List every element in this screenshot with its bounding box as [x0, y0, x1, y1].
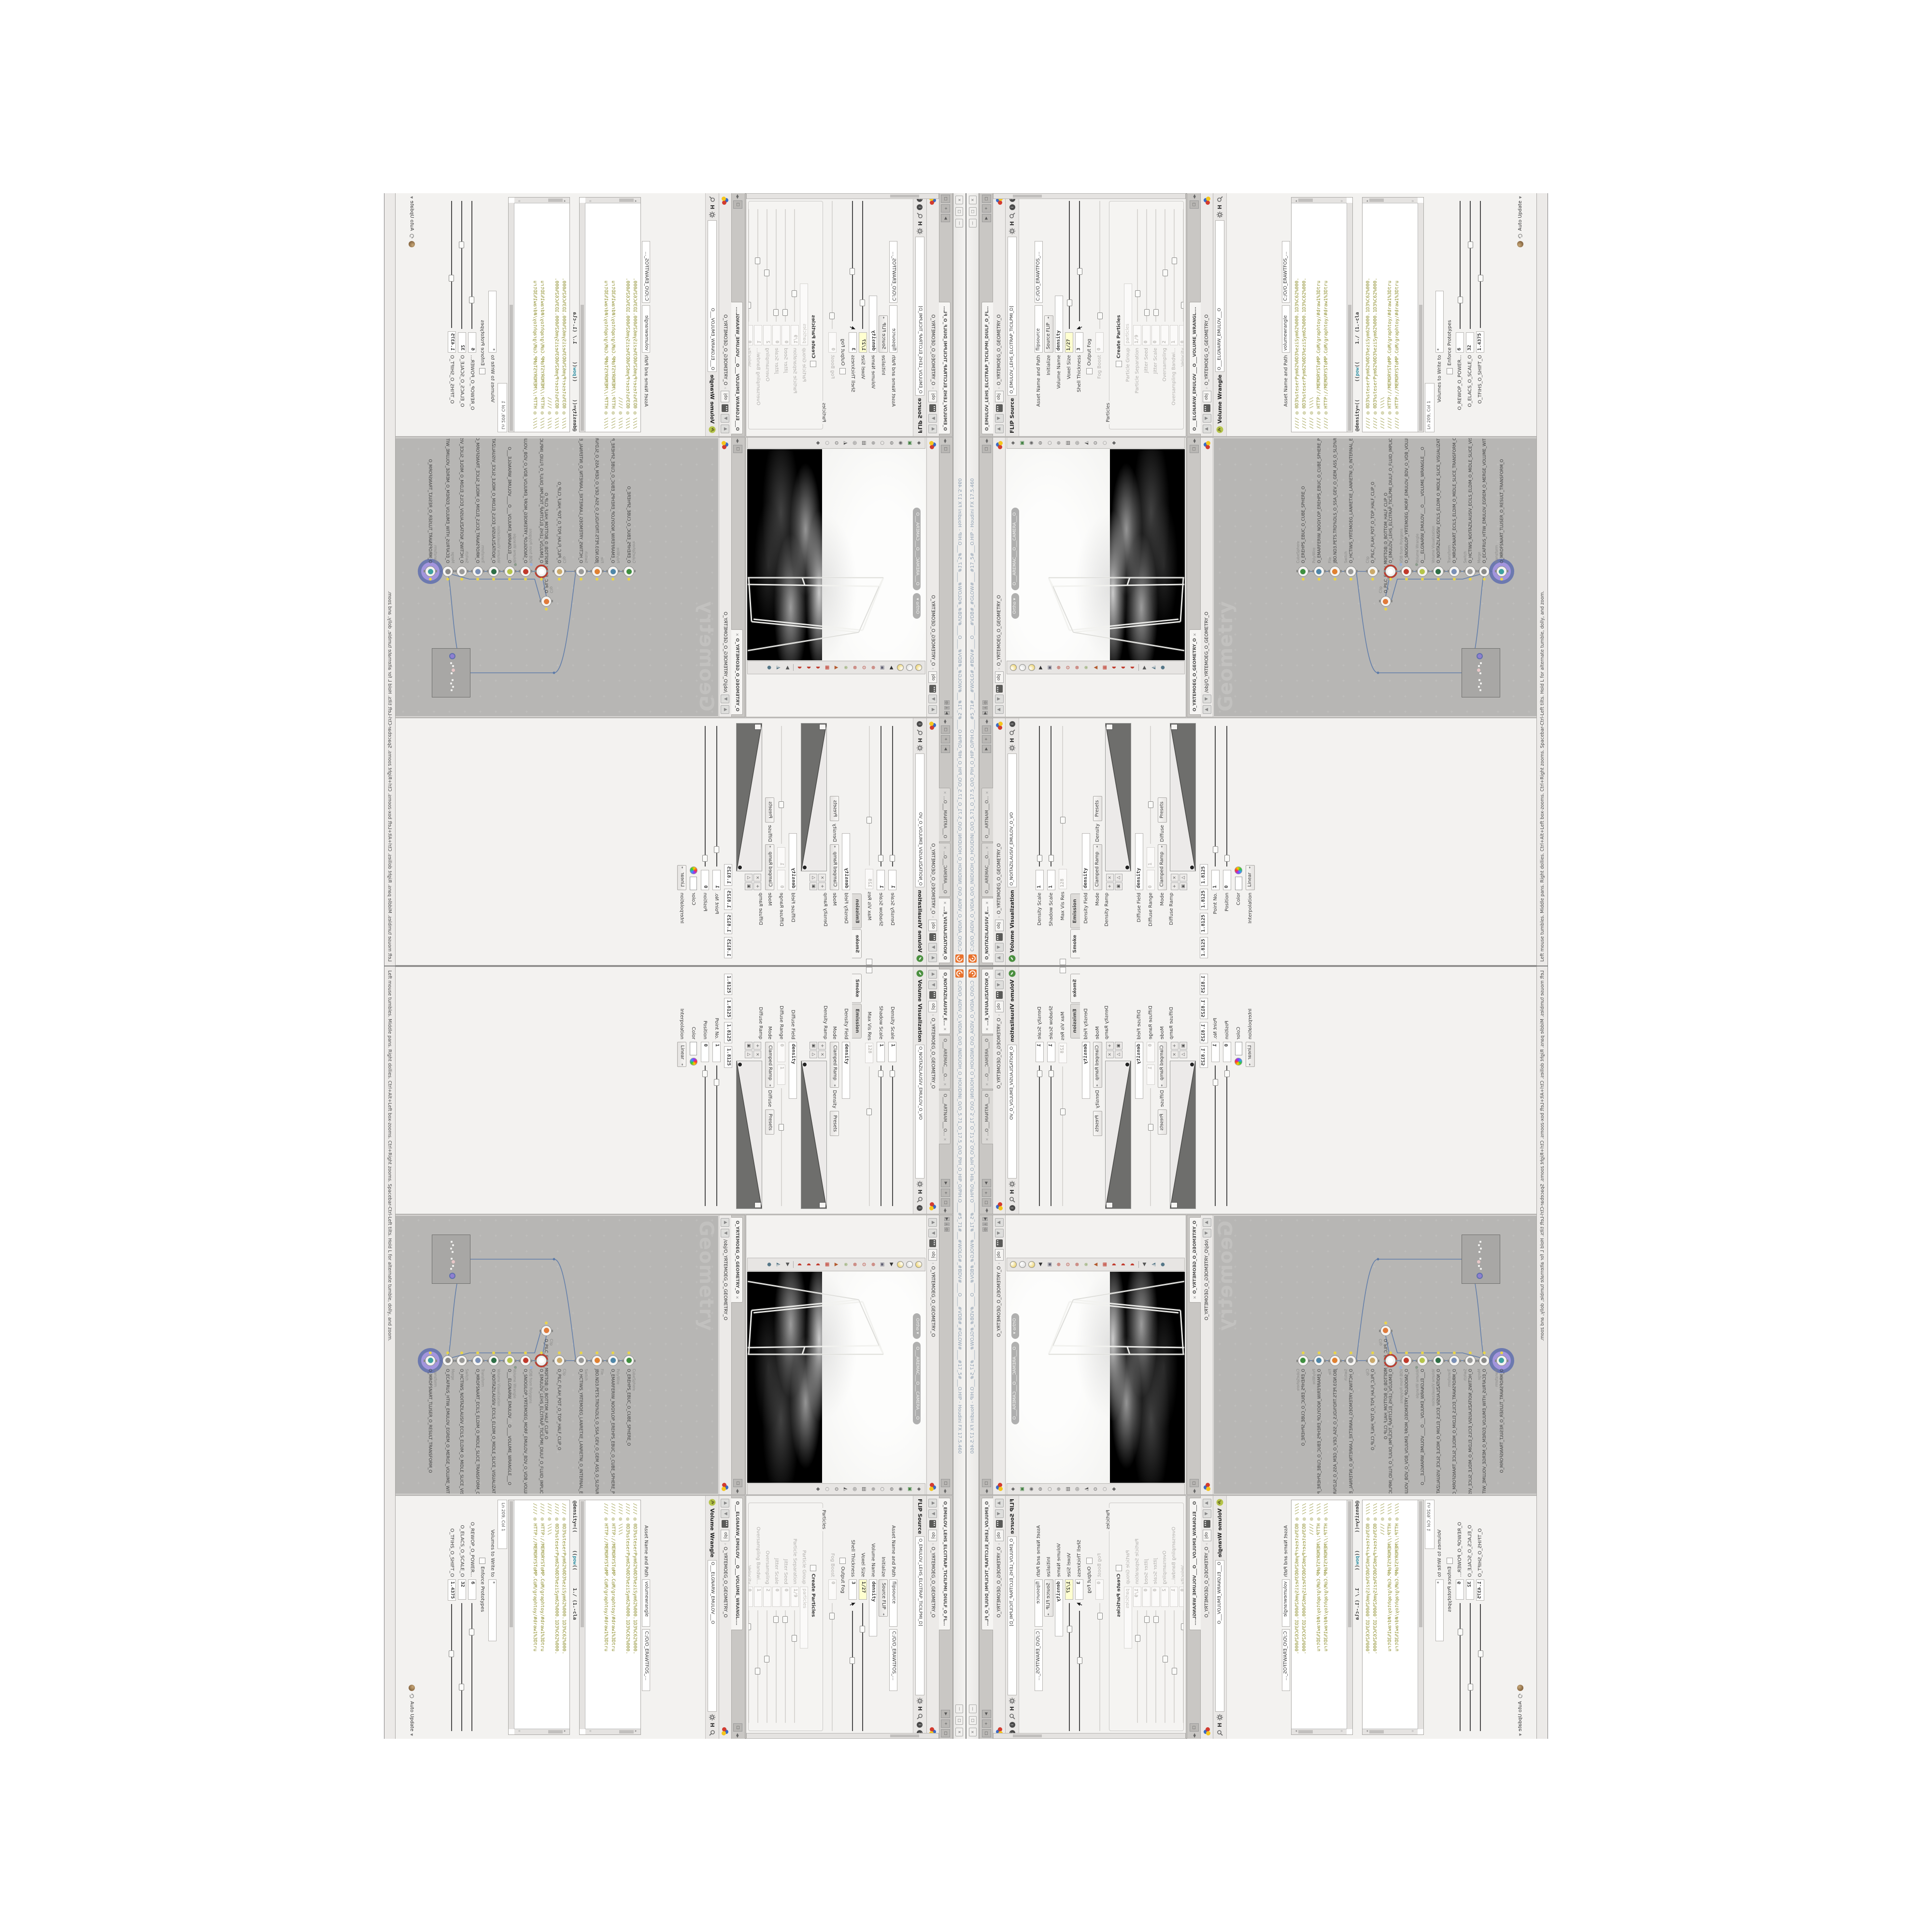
expand-icon[interactable]: ▶ [1141, 1261, 1148, 1268]
node-name-label[interactable]: O_EMULOV_LEHS_ELCITRAP_TICILPMI_DIULF_O_… [539, 1369, 543, 1494]
value-field[interactable]: 1.4375 [448, 331, 456, 353]
code-vertical-scrollbar[interactable] [514, 1729, 569, 1734]
ramp-button-icon[interactable]: ▣ [1115, 882, 1122, 890]
pane-play-icon[interactable]: ▶ [982, 1710, 991, 1718]
nav-up-icon[interactable]: ▲ [995, 705, 1004, 714]
node-name-label[interactable]: O_HCTIWS_NOITAZILAUSIV_ECILS_ELDIM_O_MID… [459, 438, 464, 563]
pose-tool-icon[interactable]: ※ [842, 1261, 849, 1268]
nav-down-icon[interactable]: ▼ [995, 980, 1004, 989]
value-field[interactable]: density [1082, 833, 1090, 890]
view-tool-icon[interactable]: ◈ [915, 439, 922, 447]
ramp-edit-buttons[interactable]: +×▣△ [745, 874, 761, 890]
text-field[interactable]: flipsource [1035, 305, 1043, 353]
pane-splitter-icon[interactable]: ◀▶ [985, 439, 989, 443]
text-field[interactable]: * [1435, 1579, 1444, 1641]
vex-snippet-editor[interactable]: //// ◎ 0D3%steserPym62%0D3%eziSym62%000.… [579, 1500, 641, 1735]
search-icon[interactable] [1009, 729, 1015, 736]
ramp-button-icon[interactable]: × [753, 874, 761, 881]
code-horizontal-scrollbar[interactable] [509, 203, 514, 432]
folder-tab-emission[interactable]: Emission [852, 1004, 862, 1038]
path-field[interactable]: C:/O/O_ERAWTFOS_... [889, 241, 897, 303]
value-field[interactable]: 2 [763, 1587, 771, 1607]
value-field[interactable]: 0 [701, 1042, 710, 1062]
value-field[interactable]: 32 [458, 332, 466, 353]
value-field[interactable]: 0 [1179, 1587, 1183, 1607]
value-field[interactable]: 0 [1095, 1579, 1104, 1600]
param-slider[interactable] [1036, 723, 1043, 867]
rotate-tool-icon[interactable]: ⊙ [1065, 664, 1072, 671]
target-icon[interactable]: ◎ [982, 700, 988, 705]
snap-box-magnet-icon[interactable]: ▦ [1102, 1261, 1108, 1268]
text-field[interactable]: volumewrangle [1282, 305, 1290, 353]
edge-magnet-icon[interactable]: ◖ [1120, 1261, 1127, 1268]
value-field[interactable]: 0 [772, 1587, 781, 1607]
shaded-sphere-icon[interactable] [1010, 1261, 1017, 1268]
nav-down-icon[interactable]: ▼ [995, 1229, 1004, 1237]
pane-tab[interactable]: O___ARTNAM___O...× [981, 1090, 993, 1144]
value-field[interactable]: 1/9 [1133, 325, 1141, 345]
pane-maximize-icon[interactable]: □ [941, 195, 950, 203]
breadcrumb[interactable]: O_YRTEMOEG_O_GEOMETRY_O [930, 595, 936, 666]
restore-button[interactable]: □ [956, 1716, 964, 1725]
obj-context-flag[interactable]: obj [1203, 391, 1211, 402]
param-slider[interactable] [878, 1065, 884, 1209]
houdini-help-icon[interactable]: H [917, 1190, 923, 1194]
value-field[interactable]: 0 [749, 325, 753, 345]
close-tab-icon[interactable]: × [943, 1027, 947, 1031]
node-name-label[interactable]: O_EREHPS_EBUC_O_CUBE_SPHERE_O [1301, 486, 1306, 563]
value-field[interactable]: 1 [1147, 1065, 1155, 1085]
node-name-label[interactable]: O_ECAFRUS_HTIW_EMULOV_EGREM_O_MERGE_VOLU… [445, 438, 450, 563]
pane-tab[interactable]: O_EMULOV_LEHS_ELCITRAP_TICILPMI_DIULF_O_… [981, 1498, 993, 1630]
obj-context-flag[interactable]: obj [929, 1001, 938, 1012]
network-node-transform[interactable] [425, 1355, 436, 1366]
node-name-label[interactable]: O_MROFSNART_TLUSER_O_RESULT_TRANSFORM_O [427, 459, 432, 563]
jump-to-operator-icon[interactable] [930, 721, 937, 730]
pane-splitter-icon[interactable]: ◀▶ [944, 1208, 948, 1212]
presets-button[interactable]: Presets [1093, 796, 1102, 822]
orbit-icon[interactable]: ◎ [851, 1485, 858, 1493]
houdini-help-icon[interactable]: H [1009, 221, 1015, 226]
nav-down-icon[interactable]: ▼ [995, 414, 1004, 423]
param-slider[interactable] [1212, 1065, 1219, 1209]
network-node-switch[interactable] [576, 566, 586, 577]
node-name-label[interactable]: O_SNOGILOP_YRTEMOEG_MORF_EMULOV_BDV_O_VD… [1405, 1369, 1409, 1494]
code-vertical-scrollbar[interactable] [1292, 198, 1347, 203]
value-field[interactable]: 1/9 [791, 325, 799, 345]
edge-magnet-icon[interactable]: ◖ [1120, 664, 1127, 671]
dropdown-menu[interactable]: Linear [678, 865, 687, 890]
obj-context-flag[interactable]: obj [929, 1249, 938, 1261]
move-tool-icon[interactable]: ⊕ [869, 664, 876, 671]
value-field[interactable]: 1 [754, 325, 762, 345]
pane-split-icon[interactable]: + [941, 1719, 950, 1728]
pane-tab[interactable]: O___ELGNARW_EMULOV___O___VOLUME_WRANGL..… [731, 302, 743, 434]
ramp-button-icon[interactable]: ▣ [1179, 1042, 1187, 1050]
ramp-gradient-widget[interactable] [1170, 1061, 1196, 1209]
pane-maximize-icon[interactable]: □ [982, 445, 991, 453]
nav-down-icon[interactable]: ▼ [995, 943, 1004, 952]
param-slider[interactable] [1096, 198, 1103, 330]
pane-tab[interactable]: O___ARTNAM___O...× [939, 788, 951, 842]
network-node-switch[interactable] [1465, 1355, 1476, 1366]
node-name-field[interactable]: O_NOITAZILAUSIV_EMULOV_O_VO [915, 1045, 924, 1179]
path-field[interactable]: C:/O/O_ERAWTFOS_... [642, 1629, 650, 1691]
close-button[interactable]: × [969, 1728, 977, 1736]
minimize-button[interactable]: — [956, 219, 964, 227]
pane-maximize-icon[interactable]: □ [1190, 445, 1199, 453]
network-node-transform[interactable] [472, 566, 483, 577]
param-slider[interactable] [1076, 198, 1083, 322]
value-field[interactable]: density [1055, 296, 1063, 353]
checkbox[interactable] [1086, 1558, 1093, 1564]
breadcrumb[interactable]: O_YRTEMOEG_O_GEOMETRY_O [930, 843, 936, 914]
code-vertical-scrollbar[interactable] [1363, 1729, 1418, 1734]
jump-to-operator-icon[interactable] [996, 1483, 1003, 1492]
text-field[interactable]: * [488, 1579, 497, 1641]
value-field[interactable]: 0 [749, 1587, 753, 1607]
ramp-value-field[interactable]: 1.8125 [1200, 998, 1208, 1019]
network-canvas[interactable]: Geometry CubeSphereO_EREHPS_EBUC_O_CUBE_… [1214, 438, 1536, 716]
color-picker-icon[interactable] [1235, 1058, 1242, 1065]
value-field[interactable]: 1 [1211, 870, 1220, 890]
value-field[interactable]: 32 [458, 1579, 466, 1600]
close-tab-icon[interactable]: × [735, 303, 739, 306]
network-node-volume-wrangle[interactable] [1417, 1355, 1428, 1366]
ramp-button-icon[interactable]: + [818, 882, 826, 890]
network-node-merge[interactable] [1479, 566, 1490, 577]
code-vertical-scrollbar[interactable] [585, 198, 640, 203]
path-field[interactable]: C:/O/O_ERAWTFOS_... [889, 1629, 897, 1691]
pane-tab[interactable]: O_EMULOV_LEHS_ELCITRAP_TICILPMI_DIULF_O_… [981, 302, 993, 434]
houdini-help-icon[interactable]: H [917, 221, 923, 226]
info-icon[interactable]: i [1009, 1205, 1015, 1211]
param-slider[interactable] [860, 198, 867, 330]
grid-magnet-icon[interactable]: ◖ [1129, 1261, 1136, 1268]
houdini-help-icon[interactable]: H [1009, 1190, 1015, 1194]
folder-tab-smoke[interactable]: Smoke [852, 929, 862, 958]
breadcrumb[interactable]: O_YRTEMOEG_O_GEOMETRY_O [930, 1266, 936, 1337]
pose-tool-icon[interactable]: ※ [1083, 1261, 1090, 1268]
gear-icon[interactable] [1217, 212, 1223, 218]
network-node-vdb-from-polygons[interactable] [520, 566, 531, 577]
network-node-polywire[interactable] [1314, 566, 1324, 577]
ramp-gradient-widget[interactable] [801, 723, 827, 871]
handles-box-icon[interactable]: ▣ [1047, 664, 1053, 671]
dropdown-menu[interactable]: Clamped Ramp [1158, 1042, 1167, 1088]
param-slider[interactable] [866, 1065, 873, 1209]
pane-tab[interactable]: O_NOITAZILAUSIV_E...× [981, 898, 993, 963]
ramp-button-icon[interactable]: △ [745, 1051, 753, 1058]
gear-icon[interactable] [1009, 1181, 1015, 1187]
presets-button[interactable]: Presets [766, 797, 775, 823]
node-name-label[interactable]: O_ECAFRUS_HTIW_EMULOV_EGREM_O_MERGE_VOLU… [445, 1369, 450, 1494]
jump-to-operator-icon[interactable] [930, 440, 937, 449]
network-node-cubesphere[interactable] [1298, 1355, 1308, 1366]
take-clapper-icon[interactable] [996, 1239, 1003, 1247]
pane-splitter-icon[interactable]: ◀▶ [1193, 439, 1196, 443]
jump-to-operator-icon[interactable] [722, 1727, 729, 1736]
expand-icon[interactable]: ▶ [784, 1261, 791, 1268]
param-slider[interactable] [1134, 1609, 1141, 1726]
value-field[interactable]: 1.4375 [448, 1579, 456, 1601]
edge-magnet-icon[interactable]: ◖ [805, 664, 812, 671]
breadcrumb[interactable]: O_YRTEMOEG_O_GEOMETRY_O [930, 1547, 936, 1618]
code-horizontal-scrollbar[interactable] [580, 203, 585, 432]
ramp-button-icon[interactable]: + [1106, 1042, 1114, 1050]
shaded-sphere-icon[interactable] [915, 1261, 922, 1268]
param-slider[interactable] [889, 1065, 896, 1209]
pane-tab[interactable]: O___AREMAC___O...× [981, 1035, 993, 1089]
pane-splitter-icon[interactable]: ◀▶ [1193, 195, 1196, 199]
view-tool-icon[interactable]: ◈ [915, 1485, 922, 1493]
node-name-field[interactable]: O_EMULOV_LEHS_ELCITRAP_TICILPMI_D] [1008, 237, 1017, 396]
nav-up-icon[interactable]: ▲ [995, 425, 1004, 433]
take-clapper-icon[interactable] [930, 1520, 937, 1528]
path-field[interactable]: C:/O/O_ERAWTFOS_... [1035, 241, 1043, 303]
light-icon[interactable]: ○ [1047, 439, 1053, 447]
nav-down-icon[interactable]: ▼ [929, 943, 938, 952]
text-field[interactable]: flipsource [1035, 1579, 1043, 1627]
pane-play-icon[interactable]: ▶ [941, 1710, 950, 1718]
checkbox[interactable] [1447, 1558, 1453, 1564]
jump-to-operator-icon[interactable] [930, 1202, 937, 1211]
update-mode-selector[interactable]: Auto Update ▼ [1517, 196, 1523, 247]
jump-to-operator-icon[interactable] [996, 440, 1003, 449]
view-tool-icon[interactable]: ◈ [1010, 439, 1017, 447]
key-icon[interactable]: ◆ [1111, 439, 1118, 447]
node-name-field[interactable]: O_EMULOV_LEHS_ELCITRAP_TICILPMI_D] [915, 1536, 924, 1695]
network-node-polywire[interactable] [1314, 1355, 1324, 1366]
node-name-label[interactable]: O_HCTIWS_YRTEMOEG_LANRETXE_LANRETNI_O_IN… [578, 1369, 583, 1494]
draw-icon[interactable]: ◭ [842, 1485, 849, 1493]
presets-button[interactable]: Presets [1158, 797, 1167, 823]
nav-up-icon[interactable]: ▲ [929, 425, 938, 433]
checkbox[interactable] [867, 959, 873, 965]
ramp-value-field[interactable]: 1.8125 [724, 937, 733, 958]
param-slider[interactable] [755, 206, 762, 323]
take-clapper-icon[interactable] [996, 991, 1003, 999]
close-tab-icon[interactable]: × [985, 846, 989, 850]
viewport-canvas[interactable]: Ortho ▾O___AREMAC___O___CAMERA___O [1007, 1272, 1185, 1483]
lasso-select-icon[interactable]: ▣ [906, 1485, 913, 1493]
param-slider[interactable] [860, 1602, 867, 1734]
value-field[interactable]: 0 [701, 870, 710, 890]
value-field[interactable]: 1 [1036, 1042, 1044, 1062]
brush-icon[interactable]: ◭ [1151, 664, 1157, 671]
expand-icon[interactable]: ▶ [784, 664, 791, 671]
pane-maximize-icon[interactable]: □ [733, 1479, 742, 1487]
network-path[interactable]: /obj/O_YRTEMOEG_O_GEOMETRY_O [1204, 611, 1209, 693]
pin-icon[interactable]: Ʇ [982, 1222, 988, 1225]
gear-icon[interactable] [1009, 1698, 1015, 1704]
node-name-field[interactable]: O_EMULOV_LEHS_ELCITRAP_TICILPMI_D] [915, 237, 924, 396]
info-icon[interactable]: i [917, 204, 923, 210]
network-node-volume-visualization[interactable] [488, 1355, 499, 1366]
projection-pill[interactable]: Ortho ▾ [1011, 1313, 1019, 1339]
vex-snippet-editor[interactable]: //// ◎ 0D3%steserPym62%0D3%eziSym62%000.… [1291, 1500, 1353, 1735]
param-slider[interactable] [764, 1609, 771, 1726]
visibility-icon[interactable]: ⊖ [888, 1485, 895, 1493]
code-horizontal-scrollbar[interactable] [1418, 1500, 1423, 1729]
pane-split-icon[interactable]: + [941, 735, 950, 743]
param-slider[interactable] [1048, 723, 1054, 867]
nav-down-icon[interactable]: ▼ [995, 695, 1004, 703]
vex-snippet-editor-2[interactable]: //// ◎ 0D3%steserPym62%0D3%eziSym62%000.… [1362, 1500, 1424, 1735]
breadcrumb[interactable]: O_YRTEMOEG_O_GEOMETRY_O [996, 843, 1002, 914]
value-field[interactable]: 0 [1147, 1042, 1155, 1062]
value-field[interactable]: 128 [1059, 869, 1067, 889]
pane-splitter-icon[interactable]: ◀▶ [944, 1489, 948, 1493]
text-field[interactable]: particles [800, 1587, 808, 1648]
add-view-icon[interactable]: ⊕ [1056, 439, 1063, 447]
color-picker-icon[interactable] [690, 1058, 697, 1065]
param-slider[interactable] [773, 206, 780, 323]
ramp-button-icon[interactable]: △ [1115, 1051, 1122, 1058]
viewport-canvas[interactable]: Ortho ▾O___AREMAC___O___CAMERA___O [747, 1272, 925, 1483]
pane-splitter-icon[interactable]: ◀▶ [944, 720, 948, 724]
select-cursor-icon[interactable]: ▶ [888, 1261, 895, 1268]
node-name-label[interactable]: O_EMULOV_LEHS_ELCITRAP_TICILPMI_DIULF_O_… [539, 438, 543, 563]
network-node-switch[interactable] [456, 1355, 467, 1366]
network-node-file[interactable] [1330, 1355, 1340, 1366]
value-field[interactable]: 1 [889, 870, 897, 890]
value-field[interactable]: 1 [754, 1587, 762, 1607]
scale-tool-icon[interactable]: ⊗ [851, 664, 858, 671]
checkbox[interactable] [839, 1558, 846, 1564]
param-slider[interactable] [1457, 198, 1463, 330]
visibility-icon[interactable]: ⊖ [1037, 439, 1044, 447]
network-node-merge[interactable] [442, 566, 453, 577]
rotate-tool-icon[interactable]: ⊙ [860, 1261, 867, 1268]
value-field[interactable]: 0 [1142, 1587, 1151, 1607]
presets-button[interactable]: Presets [830, 1111, 839, 1136]
jump-to-operator-icon[interactable] [722, 1483, 729, 1492]
value-field[interactable]: density [869, 1579, 877, 1636]
value-field[interactable]: 0 [828, 332, 837, 353]
nav-up-icon[interactable]: ▲ [721, 705, 730, 714]
minimize-button[interactable]: — [969, 219, 977, 227]
pane-maximize-icon[interactable]: □ [982, 195, 991, 203]
network-node-clip[interactable] [554, 1355, 565, 1366]
param-slider[interactable] [702, 1065, 709, 1209]
param-slider[interactable] [792, 206, 798, 323]
value-field[interactable]: 1.4375 [1476, 331, 1484, 353]
node-name-label[interactable]: O_MROFSNART_ECILS_ELDIM_O_MIDLE_SLICE_TR… [475, 1369, 480, 1494]
network-minimap[interactable] [1462, 1235, 1500, 1284]
target-icon[interactable]: ⊙ [833, 439, 839, 447]
network-path[interactable]: /obj/O_YRTEMOEG_O_GEOMETRY_O [723, 1239, 728, 1321]
network-canvas[interactable]: Geometry CubeSphereO_EREHPS_EBUC_O_CUBE_… [1214, 1216, 1536, 1494]
network-node-volume-visualization[interactable] [488, 566, 499, 577]
obj-context-flag[interactable]: obj [995, 671, 1004, 683]
value-field[interactable]: density [789, 1042, 797, 1099]
small-dot-icon[interactable]: ○ [824, 1485, 830, 1493]
search-icon[interactable] [1009, 213, 1015, 219]
value-field[interactable]: density [1135, 833, 1143, 890]
network-node-flip-source[interactable] [536, 566, 547, 577]
param-slider[interactable] [829, 1602, 836, 1734]
jump-to-operator-icon[interactable] [1204, 196, 1210, 205]
text-field[interactable]: * [488, 291, 497, 353]
param-slider[interactable] [1477, 1603, 1484, 1734]
network-path[interactable]: /obj/O_YRTEMOEG_O_GEOMETRY_O [723, 611, 728, 693]
checkbox[interactable] [1060, 959, 1066, 965]
gear-icon[interactable] [1009, 228, 1015, 234]
ramp-edit-buttons[interactable]: +×▣△ [1106, 1042, 1122, 1058]
pane-maximize-icon[interactable]: □ [941, 1479, 950, 1487]
node-name-label[interactable]: O_EMARFERIW_NOGYLOP_EREHPS_EBUC_O_CUBE_S… [1317, 438, 1322, 563]
network-node-polywire[interactable] [608, 1355, 618, 1366]
network-node-cubesphere[interactable] [1298, 566, 1308, 577]
gear-icon[interactable] [917, 745, 923, 751]
node-name-label[interactable]: O_HCTIWS_NOITAZILAUSIV_ECILS_ELDIM_O_MID… [1468, 438, 1473, 563]
param-slider[interactable] [459, 198, 466, 330]
camera-pill[interactable]: O___AREMAC___O___CAMERA___O [913, 508, 921, 590]
value-field[interactable]: 32 [1466, 332, 1474, 353]
param-slider[interactable] [1096, 1602, 1103, 1734]
value-field[interactable]: 0 [828, 1579, 837, 1600]
text-field[interactable]: volumewrangle [642, 305, 650, 353]
dropdown-menu[interactable]: Clamped Ramp [830, 1042, 839, 1088]
node-name-label[interactable]: O_MROFSNART_TLUSER_O_RESULT_TRANSFORM_O [1500, 459, 1505, 563]
pane-play-icon[interactable]: ▶ [941, 745, 950, 753]
value-field[interactable]: 1 [1047, 870, 1055, 890]
text-field[interactable]: particles [800, 284, 808, 345]
pose-tool-icon[interactable]: ※ [842, 664, 849, 671]
pane-maximize-icon[interactable]: □ [733, 445, 742, 453]
param-slider[interactable] [889, 723, 896, 867]
value-field[interactable]: 0 [1223, 1042, 1231, 1062]
param-slider[interactable] [850, 198, 856, 322]
rotate-tool-icon[interactable]: ⊙ [860, 664, 867, 671]
dropdown-menu[interactable]: Linear [1246, 1042, 1255, 1067]
checkbox[interactable] [1060, 967, 1066, 973]
param-slider[interactable] [1457, 1602, 1463, 1734]
param-slider[interactable] [755, 1609, 762, 1726]
vex-snippet-editor[interactable]: //// ◎ 0D3%steserPym62%0D3%eziSym62%000.… [579, 197, 641, 432]
move-tool-icon[interactable]: ⊕ [869, 1261, 876, 1268]
value-field[interactable]: 1 [877, 1042, 885, 1062]
node-name-field[interactable]: O___ELGNARW_EMULOV___O [1215, 1560, 1224, 1712]
network-canvas[interactable]: Geometry CubeSphereO_EREHPS_EBUC_O_CUBE_… [396, 438, 718, 716]
secure-lock-icon[interactable]: ◉ [897, 1485, 904, 1493]
grid-magnet-icon[interactable]: ◖ [1129, 664, 1136, 671]
nav-down-icon[interactable]: ▼ [929, 980, 938, 989]
param-slider[interactable] [1152, 206, 1159, 323]
node-name-label[interactable]: O___ELGNARW_EMULOV___O____VOLUME_WRANGLE… [507, 1369, 511, 1485]
value-field[interactable]: 1/27 [1065, 332, 1073, 353]
network-node-merge[interactable] [1479, 1355, 1490, 1366]
value-field[interactable]: density [869, 296, 877, 353]
color-swatch[interactable] [690, 877, 697, 890]
nav-up-icon[interactable]: ▲ [929, 970, 938, 979]
take-clapper-icon[interactable] [930, 1239, 937, 1247]
pane-split-icon[interactable]: + [941, 1189, 950, 1197]
nav-down-icon[interactable]: ▼ [929, 1509, 938, 1518]
value-field[interactable]: density [842, 1042, 851, 1099]
gear-icon[interactable] [917, 228, 923, 234]
ramp-button-icon[interactable]: ▣ [1115, 1042, 1122, 1050]
ramp-value-field[interactable]: 1.8125 [1200, 1046, 1208, 1067]
ramp-button-icon[interactable]: + [1171, 882, 1179, 890]
value-field[interactable]: 1 [778, 847, 786, 867]
pane-tab[interactable]: O___ARTNAM___O...× [981, 788, 993, 842]
param-slider[interactable] [773, 1609, 780, 1726]
pin-icon[interactable]: Ʇ [982, 706, 988, 709]
pane-maximize-icon[interactable]: □ [733, 200, 742, 209]
value-field[interactable]: 1/9 [1133, 1587, 1141, 1607]
